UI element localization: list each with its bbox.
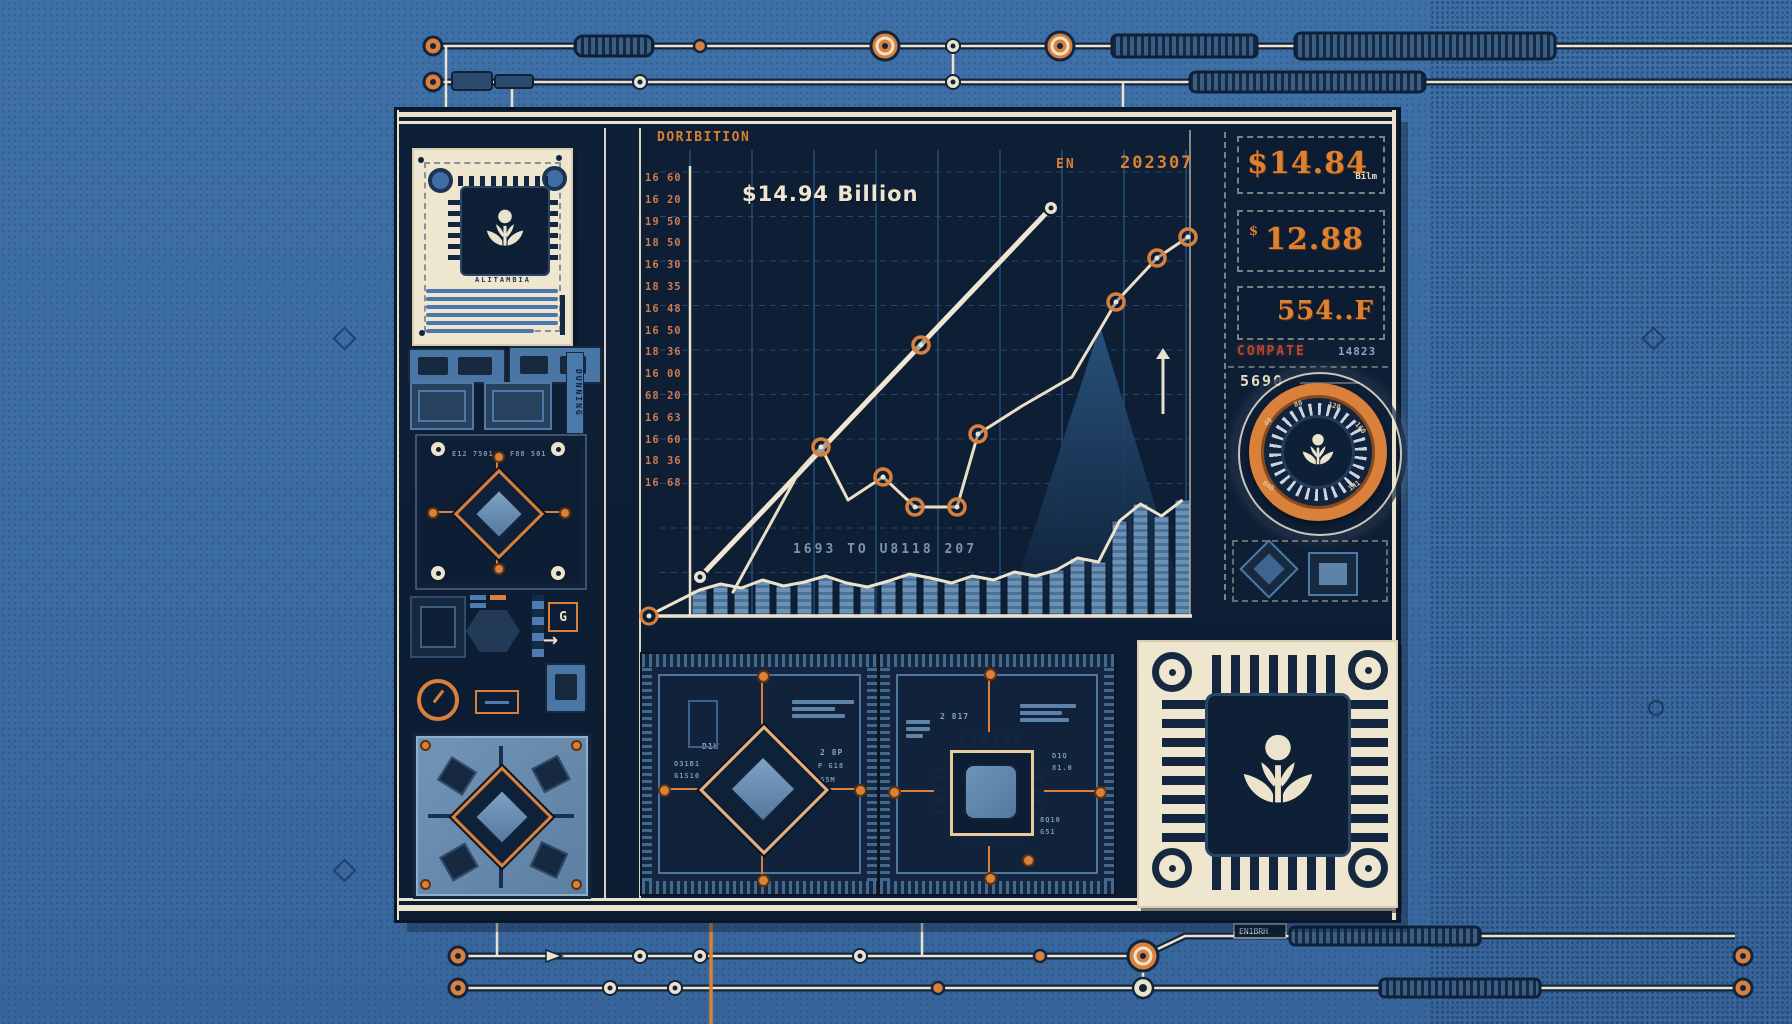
chip-core: [964, 764, 1018, 820]
stat-value: 12.88: [1265, 222, 1364, 257]
plant-logo-icon: [1229, 726, 1327, 824]
gauge-center-logo: [1281, 415, 1355, 489]
y-tick-label: 16 48: [645, 303, 689, 315]
board-label: 8Q10: [1040, 816, 1061, 824]
chip-board-panel-b: 2 817 D1Q 81.0 8Q10 G51: [878, 652, 1116, 896]
compare-code: 14823: [1338, 345, 1376, 358]
y-tick-label: 18 36: [645, 346, 689, 358]
y-tick-label: 16 50: [645, 325, 689, 337]
y-tick-label: 16 30: [645, 259, 689, 271]
board-label: O31B1: [674, 760, 700, 768]
chip-with-logo-large: [1205, 693, 1351, 857]
currency-symbol: $: [1249, 224, 1258, 239]
y-tick-label: 16 63: [645, 412, 689, 424]
stat-unit: Bilm: [1355, 172, 1377, 182]
y-tick-label: 18 50: [645, 237, 689, 249]
board-label: G51: [1040, 828, 1056, 836]
y-tick-label: 18 36: [645, 455, 689, 467]
blueprint-dashboard-illustration: EN1BRH: [0, 0, 1792, 1024]
component-outline: [688, 700, 718, 748]
chip-pins-left: [1162, 700, 1206, 842]
chip-pins-top: [1212, 655, 1338, 695]
stat-card-index: 554..F: [1237, 286, 1385, 340]
label-block: [906, 720, 930, 738]
board-label: 2 8P: [820, 748, 843, 757]
stat-card-revenue: $14.84 Bilm: [1237, 136, 1385, 194]
board-label: 81.0: [1052, 764, 1073, 772]
y-tick-label: 18 35: [645, 281, 689, 293]
board-label: 2 817: [940, 712, 969, 721]
chip-board-panel-a: D1W O31B1 G1S10 2 8P P G18 G5M: [640, 652, 879, 896]
y-tick-label: 16 00: [645, 368, 689, 380]
y-tick-label: 68 20: [645, 390, 689, 402]
label-block: [792, 700, 854, 718]
screw-icon: [1348, 650, 1388, 690]
stat-card-price: $ 12.88: [1237, 210, 1385, 272]
y-tick-label: 16 68: [645, 477, 689, 489]
chart-annotation: $14.94 Billion: [742, 182, 919, 206]
y-tick-label: 16 60: [645, 172, 689, 184]
mini-square-chip-icon: [1308, 552, 1358, 596]
x-axis-label: 1693 TO U8118 207: [770, 542, 1000, 557]
divider: [1228, 366, 1388, 368]
screw-icon: [1152, 652, 1192, 692]
screw-icon: [1348, 848, 1388, 888]
stats-column-divider: [1224, 132, 1226, 600]
stat-value: $14.84: [1247, 146, 1368, 181]
chart-title: DORIBITION: [657, 130, 750, 145]
chart-period-label: 202307: [1120, 153, 1193, 173]
plant-logo-icon: [1296, 430, 1340, 474]
y-tick-label: 16 60: [645, 434, 689, 446]
stat-value: 554..F: [1277, 296, 1374, 326]
y-tick-label: 16 20: [645, 194, 689, 206]
board-label: G1S10: [674, 772, 700, 780]
y-tick-label: 19 50: [645, 216, 689, 228]
chart-legend-label: EN: [1056, 157, 1076, 172]
screw-icon: [1152, 848, 1192, 888]
board-label: P G18: [818, 762, 844, 770]
board-label: D1Q: [1052, 752, 1068, 760]
compare-label: COMPATE: [1237, 344, 1306, 359]
label-block: [1020, 704, 1076, 722]
